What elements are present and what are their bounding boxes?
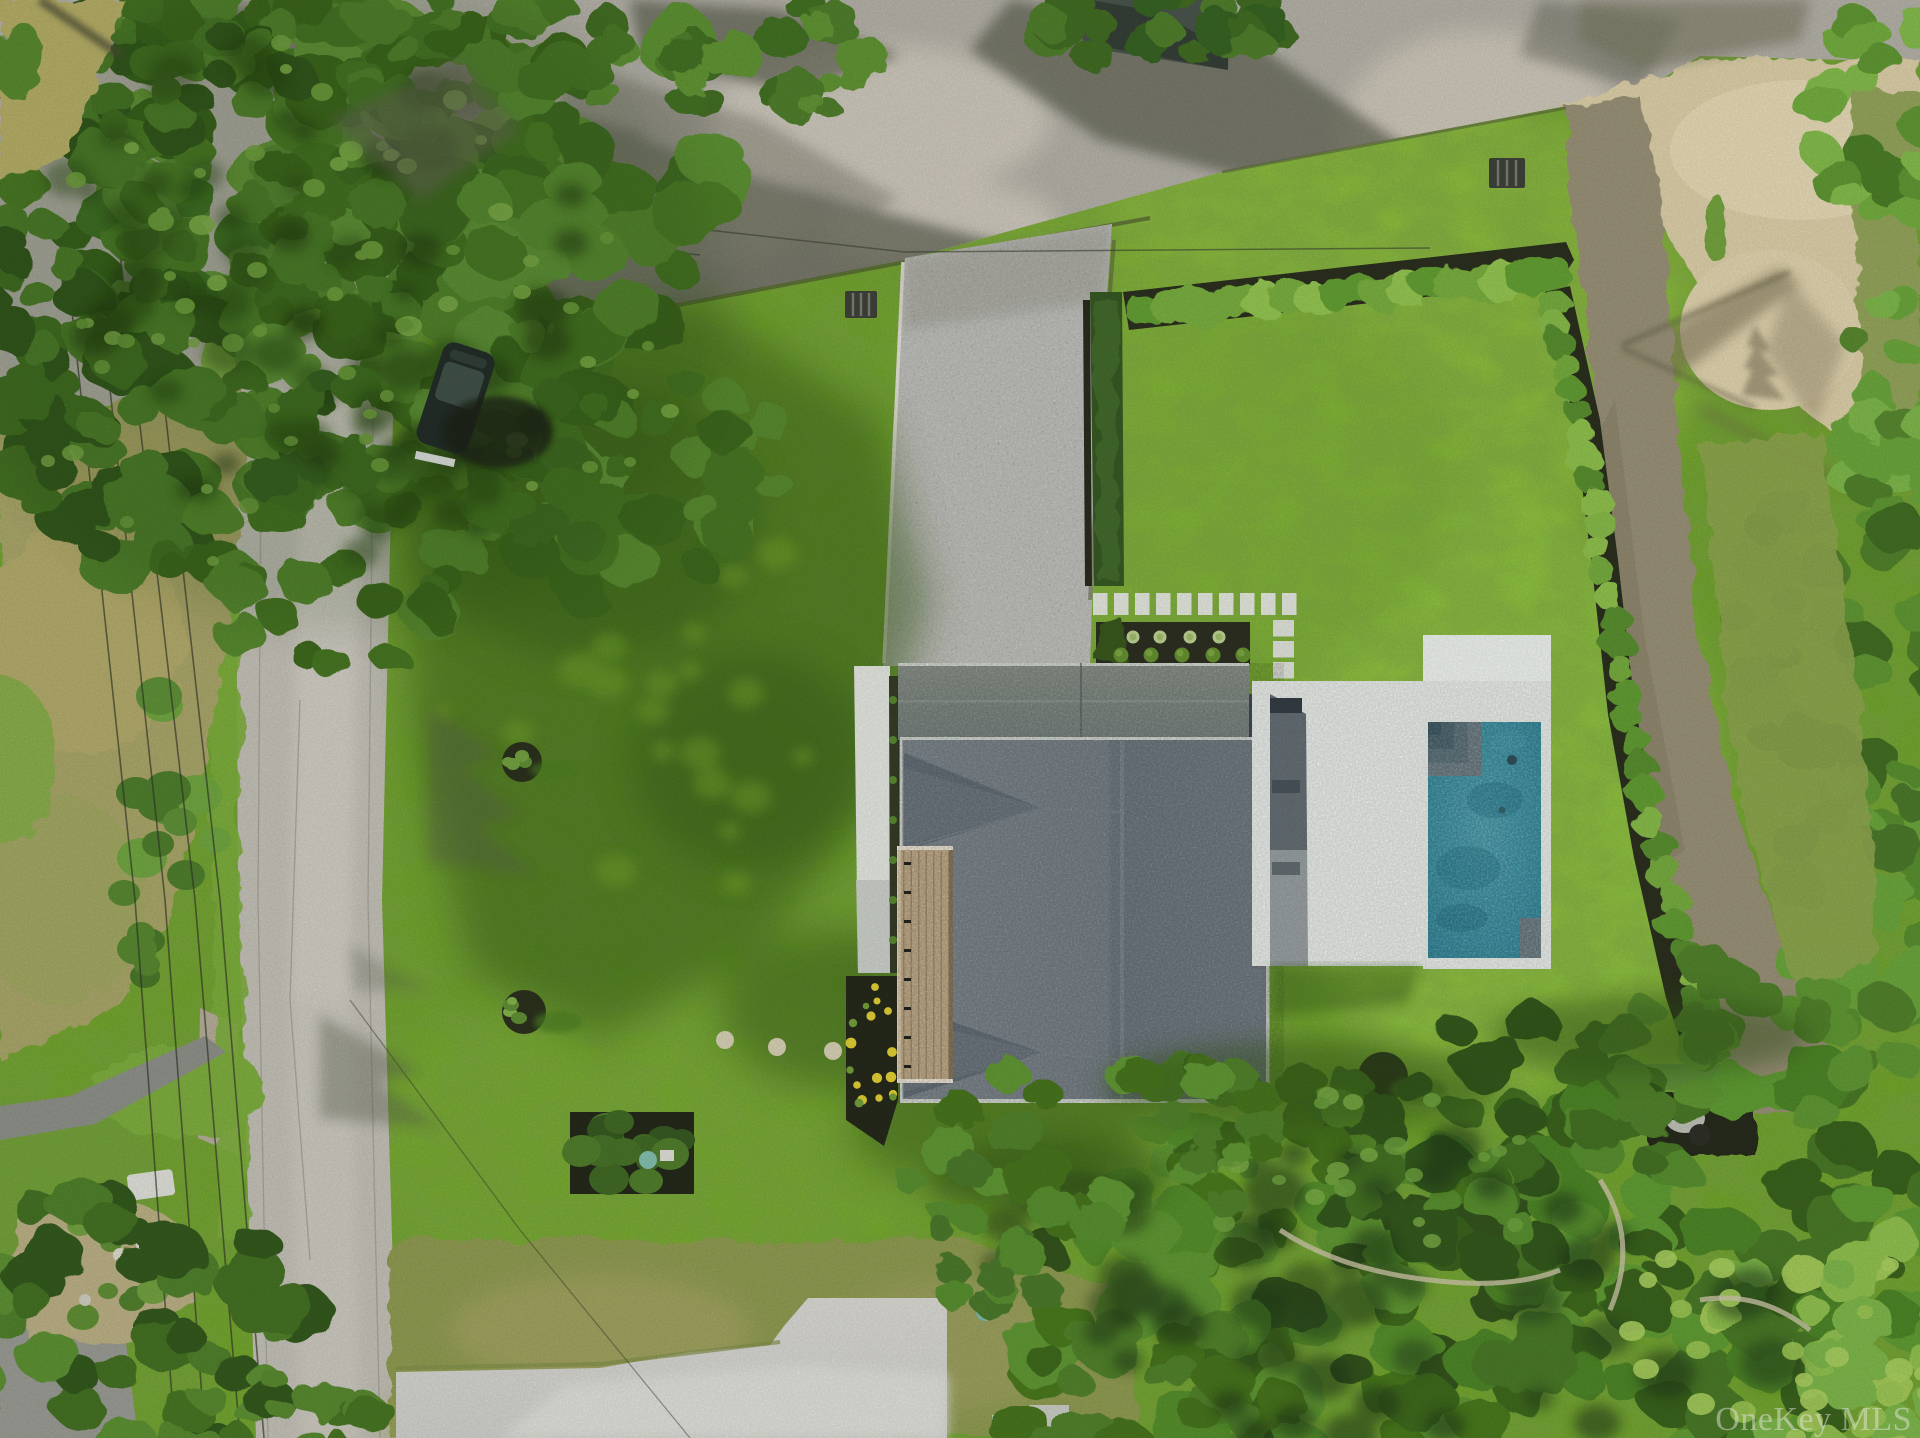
- svg-text:OneKey MLS: OneKey MLS: [1715, 1401, 1912, 1438]
